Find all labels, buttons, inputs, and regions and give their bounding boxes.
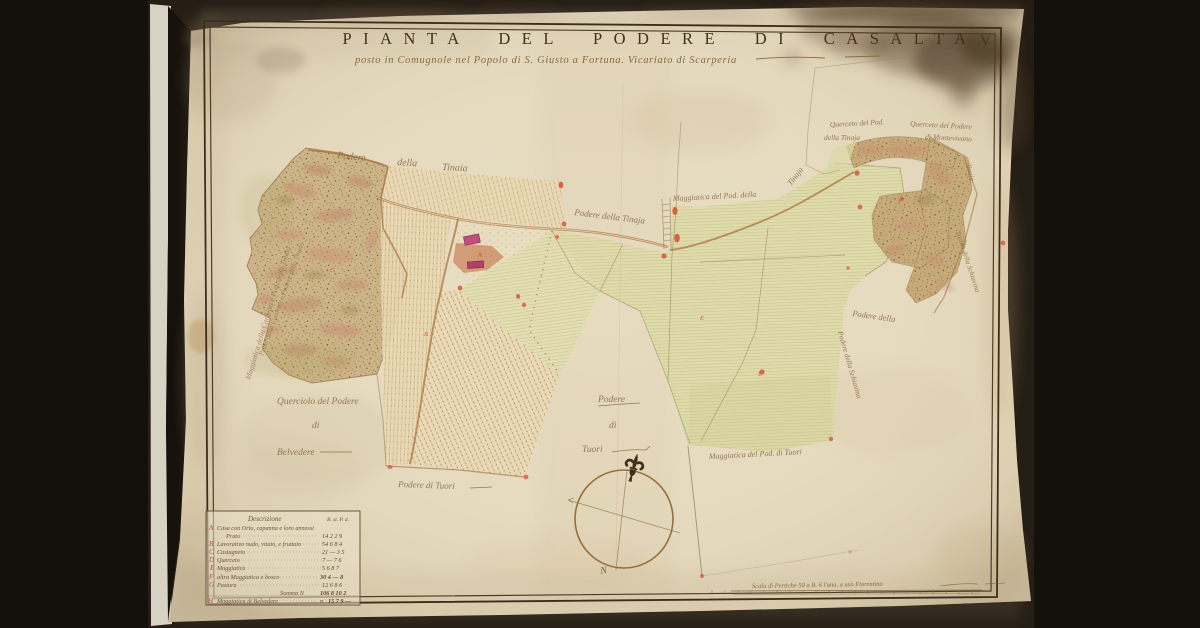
- svg-text:30 4 — 8: 30 4 — 8: [319, 574, 343, 581]
- svg-text:di: di: [312, 421, 320, 431]
- svg-text:5 6 8 7: 5 6 8 7: [322, 565, 340, 572]
- svg-text:Tuori: Tuori: [582, 445, 603, 455]
- svg-text:E: E: [757, 371, 762, 378]
- svg-text:A: A: [477, 252, 482, 259]
- svg-text:7 — 7 6: 7 — 7 6: [322, 557, 342, 564]
- svg-text:12 6 8 6: 12 6 8 6: [322, 582, 343, 589]
- svg-text:C: C: [330, 267, 335, 274]
- svg-text:B. st. P. d.: B. st. P. d.: [327, 517, 349, 523]
- svg-text:21 — 3 5: 21 — 3 5: [322, 549, 345, 556]
- svg-text:della Tinaja: della Tinaja: [824, 133, 860, 142]
- svg-text:15 7 9 —: 15 7 9 —: [328, 598, 352, 605]
- svg-text:Maggiatica di Belvedere: Maggiatica di Belvedere: [216, 598, 278, 605]
- svg-text:Querceto: Querceto: [217, 557, 240, 564]
- svg-text:F: F: [208, 573, 214, 581]
- svg-text:54 6 8 4: 54 6 8 4: [322, 541, 342, 548]
- svg-text:H: H: [207, 597, 214, 605]
- svg-text:Casa con Orto, capanna e loro: Casa con Orto, capanna e loro annessi: [217, 525, 314, 532]
- svg-text:B: B: [516, 294, 520, 301]
- svg-text:della: della: [397, 157, 418, 169]
- svg-text:G: G: [209, 581, 214, 589]
- svg-text:altra Maggiatica e bosco: altra Maggiatica e bosco: [217, 574, 279, 581]
- svg-text:Podere di Tuori: Podere di Tuori: [397, 479, 455, 491]
- svg-text:A: A: [208, 524, 214, 532]
- svg-text:Tinaia: Tinaia: [442, 162, 468, 174]
- svg-text:Castagneto: Castagneto: [217, 549, 245, 556]
- svg-text:E: E: [209, 564, 215, 572]
- svg-text:Podere: Podere: [597, 395, 625, 405]
- svg-text:Pastura: Pastura: [216, 582, 237, 589]
- svg-text:Somma N: Somma N: [280, 590, 305, 597]
- svg-text:Descrizione: Descrizione: [247, 515, 281, 523]
- svg-text:106 8 10 2: 106 8 10 2: [320, 590, 346, 597]
- svg-text:n.: n.: [320, 598, 325, 605]
- svg-text:E: E: [699, 315, 704, 322]
- svg-text:posto in Comugnole nel Popolo: posto in Comugnole nel Popolo di S. Gius…: [354, 55, 737, 66]
- svg-text:Belvedere: Belvedere: [277, 448, 315, 458]
- svg-text:Querciolo del Podere: Querciolo del Podere: [277, 397, 359, 407]
- svg-text:C: C: [209, 548, 214, 556]
- svg-text:di: di: [609, 421, 617, 431]
- svg-text:Maggiatica: Maggiatica: [216, 565, 246, 572]
- svg-text:14 2 2 9: 14 2 2 9: [322, 533, 342, 540]
- svg-text:Prato: Prato: [225, 533, 240, 540]
- svg-text:B: B: [209, 540, 214, 548]
- svg-text:D: D: [208, 556, 214, 564]
- svg-text:V: V: [980, 33, 991, 49]
- svg-text:B: B: [424, 331, 428, 338]
- svg-text:Lavorativo nudo, vitato, e fru: Lavorativo nudo, vitato, e fruttato: [216, 541, 301, 548]
- svg-text:PIANTA DEL PODERE DI CASAL: PIANTA DEL PODERE DI CASALTA: [342, 29, 977, 48]
